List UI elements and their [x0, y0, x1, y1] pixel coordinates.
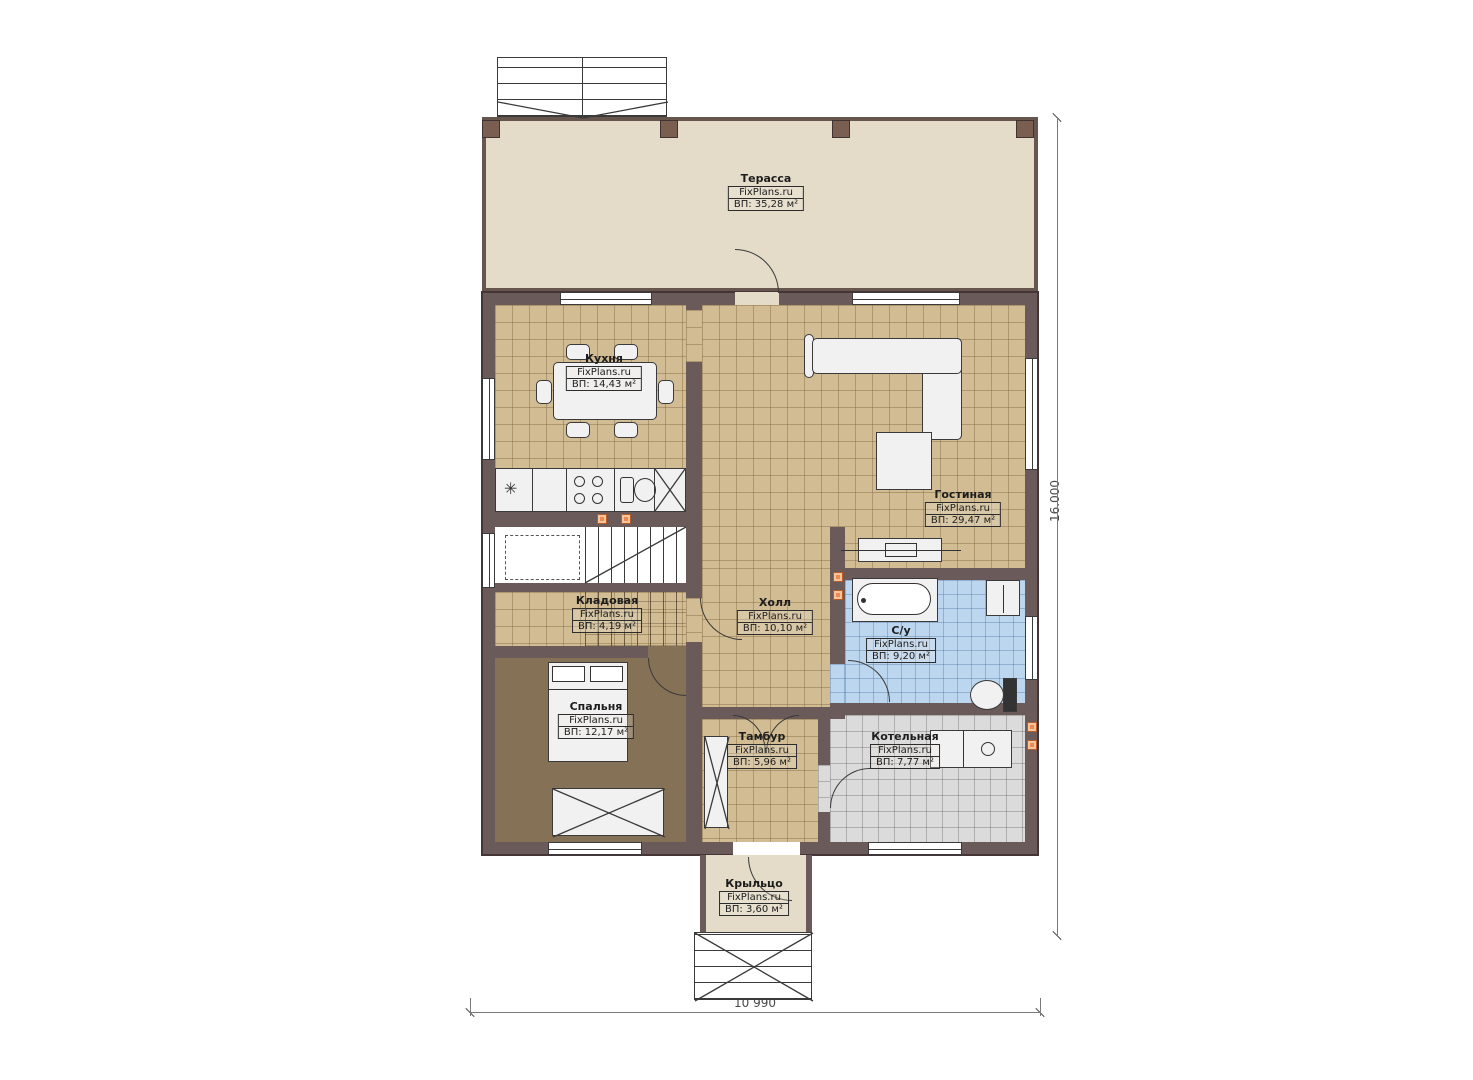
room-label-kitchen: Кухня FixPlans.ru ВП: 14,43 м² — [566, 352, 642, 391]
room-name: Гостиная — [925, 488, 1001, 501]
watermark-text: FixPlans.ru — [867, 639, 935, 651]
room-label-vestibule: Тамбур FixPlans.ru ВП: 5,96 м² — [727, 730, 797, 769]
room-area: ВП: 29,47 м² — [926, 515, 1000, 526]
stairs-landing — [505, 535, 580, 580]
counter-divider — [532, 469, 533, 511]
extension-line — [1040, 998, 1041, 1016]
coffee-table — [876, 432, 932, 490]
watermark-text: FixPlans.ru — [573, 609, 641, 621]
room-info-box: FixPlans.ru ВП: 12,17 м² — [558, 714, 634, 739]
sofa-seat — [812, 338, 962, 374]
watermark-text: FixPlans.ru — [871, 745, 939, 757]
room-name: Кухня — [566, 352, 642, 365]
room-name: Крыльцо — [719, 877, 789, 890]
sink-basin — [620, 477, 634, 503]
wall-hall-vestibule-left — [702, 707, 733, 719]
socket-marker — [833, 572, 843, 582]
watermark-text: FixPlans.ru — [559, 715, 633, 727]
room-area: ВП: 7,77 м² — [871, 757, 939, 768]
watermark-text: FixPlans.ru — [567, 367, 641, 379]
window-stairs-left — [482, 533, 495, 588]
socket-marker — [621, 514, 631, 524]
boiler-circle — [981, 742, 995, 756]
porch-steps — [694, 932, 812, 1000]
room-label-living: Гостиная FixPlans.ru ВП: 29,47 м² — [925, 488, 1001, 527]
counter-divider — [614, 469, 615, 511]
toilet-tank — [1003, 678, 1017, 712]
steps-diagonals — [498, 58, 668, 118]
kitchen-opening — [686, 310, 702, 362]
socket-marker — [1027, 740, 1037, 750]
window-bath-right — [1025, 616, 1038, 680]
window-living-top — [852, 292, 960, 305]
room-label-pantry: Кладовая FixPlans.ru ВП: 4,19 м² — [572, 594, 642, 633]
porch-wall-right — [806, 855, 812, 932]
stairs-break-line — [585, 527, 686, 583]
room-name: Холл — [737, 596, 813, 609]
hall-corridor-floor — [702, 568, 830, 707]
wardrobe — [552, 788, 664, 836]
socket-marker — [597, 514, 607, 524]
room-name: Спальня — [558, 700, 634, 713]
dining-chair — [566, 422, 590, 438]
room-name: Кладовая — [572, 594, 642, 607]
room-info-box: FixPlans.ru ВП: 7,77 м² — [870, 744, 940, 769]
dining-chair — [536, 380, 552, 404]
watermark-text: FixPlans.ru — [738, 611, 812, 623]
entrance-door-gap — [733, 842, 800, 855]
stove-burner — [574, 493, 585, 504]
terrace-post — [660, 120, 678, 138]
watermark-text: FixPlans.ru — [728, 745, 796, 757]
bathtub — [852, 578, 938, 622]
window-bedroom-bottom — [548, 842, 642, 855]
room-label-hall: Холл FixPlans.ru ВП: 10,10 м² — [737, 596, 813, 635]
toilet — [970, 678, 1018, 712]
window-boiler-bottom — [868, 842, 962, 855]
floor-plan-canvas: ✳ — [0, 0, 1473, 1080]
toilet-bowl — [970, 680, 1004, 710]
room-area: ВП: 12,17 м² — [559, 727, 633, 738]
room-area: ВП: 5,96 м² — [728, 757, 796, 768]
boiler-unit — [930, 730, 1012, 768]
room-area: ВП: 14,43 м² — [567, 379, 641, 390]
room-info-box: FixPlans.ru ВП: 14,43 м² — [566, 366, 642, 391]
terrace-steps — [497, 57, 667, 117]
room-label-bathroom: С/у FixPlans.ru ВП: 9,20 м² — [866, 624, 936, 663]
room-name: Тамбур — [727, 730, 797, 743]
room-label-boiler: Котельная FixPlans.ru ВП: 7,77 м² — [870, 730, 940, 769]
wardrobe-cross — [553, 789, 665, 837]
room-label-bedroom: Спальня FixPlans.ru ВП: 12,17 м² — [558, 700, 634, 739]
terrace-post — [482, 120, 500, 138]
room-label-porch: Крыльцо FixPlans.ru ВП: 3,60 м² — [719, 877, 789, 916]
room-area: ВП: 10,10 м² — [738, 623, 812, 634]
dimension-line-right — [1057, 117, 1058, 935]
room-name: С/у — [866, 624, 936, 637]
boiler-divider — [963, 731, 964, 767]
dining-chair — [658, 380, 674, 404]
pillow — [590, 666, 623, 682]
faucet-dot — [861, 598, 866, 603]
wall-hall-vestibule-right — [800, 707, 845, 719]
stove-burner — [592, 476, 603, 487]
fridge-cross — [655, 469, 685, 511]
room-area: ВП: 35,28 м² — [729, 199, 803, 210]
stove-burner — [592, 493, 603, 504]
stove-burner — [574, 476, 585, 487]
terrace-post — [1016, 120, 1034, 138]
dining-chair — [614, 422, 638, 438]
terrace-post — [832, 120, 850, 138]
watermark-text: FixPlans.ru — [926, 503, 1000, 515]
socket-marker — [833, 590, 843, 600]
bath-door-gap — [830, 664, 845, 703]
window-kitchen-left — [482, 378, 495, 460]
room-info-box: FixPlans.ru ВП: 9,20 м² — [866, 638, 936, 663]
room-info-box: FixPlans.ru ВП: 10,10 м² — [737, 610, 813, 635]
room-area: ВП: 9,20 м² — [867, 651, 935, 662]
room-info-box: FixPlans.ru ВП: 3,60 м² — [719, 891, 789, 916]
tv-line — [841, 550, 961, 551]
room-info-box: FixPlans.ru ВП: 4,19 м² — [572, 608, 642, 633]
wall-vestibule-boiler-top — [818, 719, 830, 765]
room-info-box: FixPlans.ru ВП: 35,28 м² — [728, 186, 804, 211]
watermark-text: FixPlans.ru — [720, 892, 788, 904]
porch-wall-left — [700, 855, 706, 932]
terrace-door-gap — [735, 292, 779, 305]
room-info-box: FixPlans.ru ВП: 5,96 м² — [727, 744, 797, 769]
pillow — [552, 666, 585, 682]
dimension-height-text: 16.000 — [1048, 480, 1062, 522]
bathtub-inner — [857, 583, 931, 615]
wall-stairs-pantry — [495, 583, 686, 592]
room-info-box: FixPlans.ru ВП: 29,47 м² — [925, 502, 1001, 527]
window-kitchen-top — [560, 292, 652, 305]
wardrobe-cross — [705, 737, 729, 829]
socket-marker — [1027, 722, 1037, 732]
wall-kitchen-stairs — [495, 512, 686, 527]
window-living-right — [1025, 358, 1038, 470]
room-name: Терасса — [728, 172, 804, 185]
sink-bowl — [634, 478, 656, 502]
kitchen-counter: ✳ — [495, 468, 686, 512]
counter-divider — [566, 469, 567, 511]
wall-vestibule-boiler-bottom — [818, 812, 830, 842]
tv-stand — [858, 538, 942, 562]
room-name: Котельная — [870, 730, 940, 743]
watermark-text: FixPlans.ru — [729, 187, 803, 199]
lamp-symbol: ✳ — [504, 479, 517, 498]
sink-center-line — [1003, 585, 1004, 613]
bedroom-door-gap — [648, 646, 686, 658]
boiler-door-gap — [818, 765, 830, 812]
room-area: ВП: 3,60 м² — [720, 904, 788, 915]
dimension-line-bottom — [470, 1012, 1040, 1013]
room-label-terrace: Терасса FixPlans.ru ВП: 35,28 м² — [728, 172, 804, 211]
blanket-line — [549, 689, 627, 690]
vestibule-wardrobe — [704, 736, 728, 828]
room-area: ВП: 4,19 м² — [573, 621, 641, 632]
porch-steps-cross — [695, 933, 813, 1001]
bathroom-sink — [986, 580, 1020, 616]
extension-line — [470, 998, 471, 1016]
